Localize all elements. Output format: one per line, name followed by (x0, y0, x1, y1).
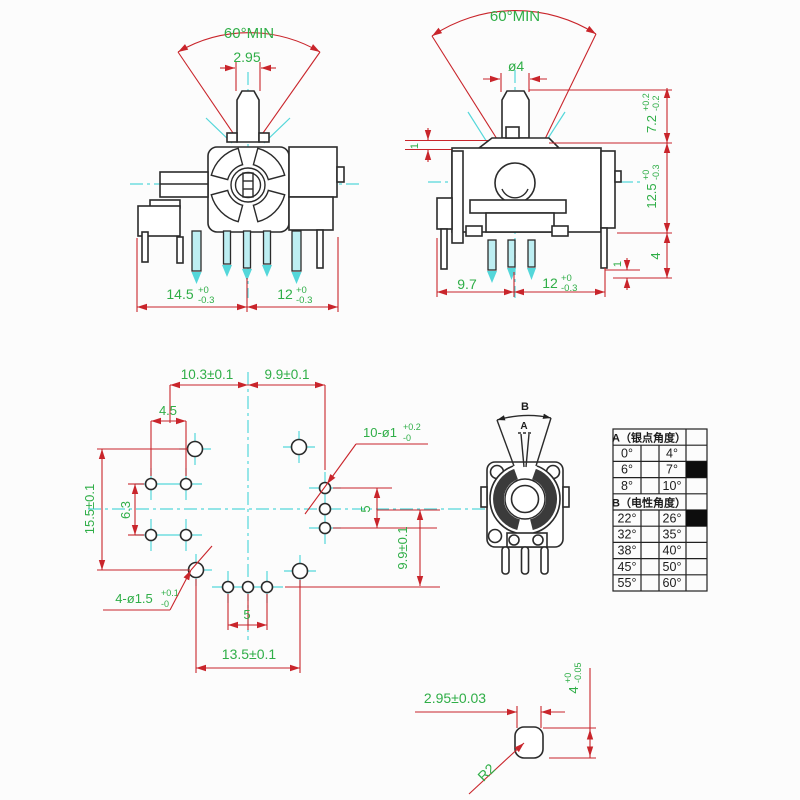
step-right-label: 1 (612, 261, 624, 267)
pcb-layout: 10.3±0.1 9.9±0.1 4.5 15.5±0.1 6.3 10-ø1 … (82, 367, 535, 673)
svg-text:-0.3: -0.3 (561, 283, 577, 294)
svg-text:7.2: 7.2 (644, 115, 659, 133)
row-gap-label: 6.3 (118, 501, 133, 519)
svg-text:38°: 38° (618, 544, 637, 558)
small-hole-label: 10-ø1 (363, 425, 397, 440)
detail-radius-label: R2 (474, 760, 498, 784)
svg-text:-0.05: -0.05 (573, 662, 583, 683)
svg-text:10°: 10° (663, 479, 682, 493)
front-dim-right: 12 (277, 286, 293, 302)
large-hole-label: 4-ø1.5 (115, 591, 153, 606)
pin-length-label: 4 (648, 252, 663, 259)
svg-text:+0.1: +0.1 (161, 588, 179, 598)
base-right-label: 12 (542, 275, 558, 291)
selected-mark-b (686, 510, 707, 526)
svg-text:55°: 55° (618, 576, 637, 590)
svg-text:50°: 50° (663, 560, 682, 574)
base-left-label: 9.7 (457, 276, 477, 292)
svg-text:22°: 22° (618, 511, 637, 525)
technical-drawing-page: 60°MIN 2.95 (0, 0, 800, 800)
angle-a-label: A (520, 421, 527, 432)
side-view: 60°MIN ø4 1 (405, 8, 672, 298)
spacing-right-label: 9.9±0.1 (265, 367, 310, 382)
angle-table: A（银点角度） 0° 4° 6° 7° 8° 10° B（电性角度） 22° 2… (612, 429, 707, 591)
front-shaft-width-label: 2.95 (233, 49, 260, 65)
svg-text:60°: 60° (663, 576, 682, 590)
svg-text:-0.3: -0.3 (296, 295, 312, 306)
height-upper-dim: 7.2 +0.2 -0.2 (641, 93, 661, 133)
svg-text:8°: 8° (621, 479, 633, 493)
bottom-pitch-label: 5 (243, 607, 250, 622)
shaft-dia-label: ø4 (508, 58, 525, 74)
svg-text:-0: -0 (161, 599, 169, 609)
front-dim-left: 14.5 (166, 286, 193, 302)
side-angle-label: 60°MIN (490, 8, 540, 25)
svg-text:-0: -0 (403, 433, 411, 443)
selected-mark-a (686, 461, 707, 477)
angle-b-label: B (521, 401, 529, 413)
table-header-b: B（电性角度） (612, 495, 686, 509)
right-pitch-label: 5 (358, 505, 373, 512)
svg-text:+0.2: +0.2 (403, 422, 421, 432)
shaft-detail: 2.95±0.03 4 +0 -0.05 R2 (415, 662, 596, 794)
svg-text:12.5: 12.5 (644, 183, 659, 208)
front-view: 60°MIN 2.95 (130, 25, 362, 312)
svg-text:32°: 32° (618, 528, 637, 542)
spacing-left-label: 10.3±0.1 (181, 367, 233, 382)
svg-text:4: 4 (566, 686, 581, 693)
pair-spacing-label: 4.5 (159, 403, 177, 418)
svg-text:+0: +0 (641, 170, 651, 180)
step-top-label: 1 (409, 143, 421, 149)
svg-text:-0.3: -0.3 (651, 164, 661, 180)
table-header-a: A（银点角度） (612, 431, 686, 445)
svg-text:40°: 40° (663, 544, 682, 558)
svg-text:4°: 4° (666, 447, 678, 461)
detail-height-dim: 4 +0 -0.05 (563, 662, 583, 693)
svg-text:-0.3: -0.3 (198, 295, 214, 306)
svg-text:7°: 7° (666, 463, 678, 477)
joystick-module-drawing: 60°MIN 2.95 (0, 0, 800, 800)
svg-text:-0.2: -0.2 (651, 95, 661, 111)
svg-text:35°: 35° (663, 528, 682, 542)
svg-text:0°: 0° (621, 447, 633, 461)
width-label: 13.5±0.1 (222, 646, 277, 662)
svg-text:45°: 45° (618, 560, 637, 574)
svg-text:+0.2: +0.2 (641, 93, 651, 111)
top-view: B A (481, 401, 569, 574)
svg-text:26°: 26° (663, 511, 682, 525)
height-label: 15.5±0.1 (82, 484, 97, 535)
detail-width-label: 2.95±0.03 (424, 690, 486, 706)
right-height-label: 9.9±0.1 (395, 526, 410, 569)
height-body-dim: 12.5 +0 -0.3 (641, 164, 661, 208)
front-angle-label: 60°MIN (224, 25, 274, 42)
svg-text:6°: 6° (621, 463, 633, 477)
svg-text:+0: +0 (563, 673, 573, 683)
